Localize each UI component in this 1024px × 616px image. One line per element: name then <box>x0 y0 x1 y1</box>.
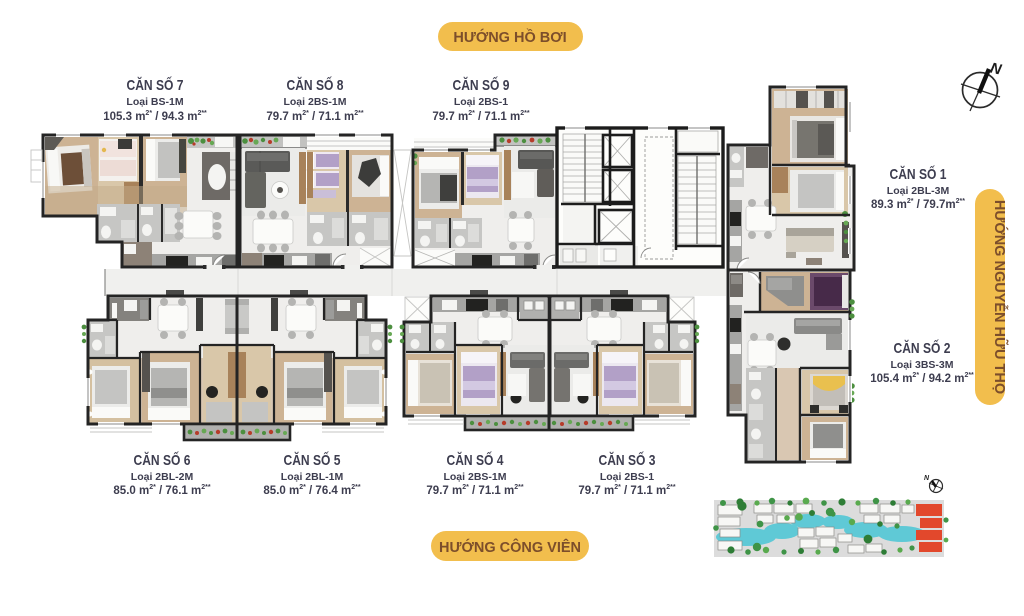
svg-text:105.3 m2* / 94.3 m2**: 105.3 m2* / 94.3 m2** <box>103 110 207 123</box>
svg-text:79.7 m2* / 71.1 m2**: 79.7 m2* / 71.1 m2** <box>432 110 529 123</box>
svg-text:CĂN SỐ 2: CĂN SỐ 2 <box>894 339 951 357</box>
svg-text:89.3 m2* / 79.7m2**: 89.3 m2* / 79.7m2** <box>871 198 965 211</box>
svg-text:79.7 m2* / 71.1 m2**: 79.7 m2* / 71.1 m2** <box>266 110 363 123</box>
svg-text:CĂN SỐ 6: CĂN SỐ 6 <box>134 451 191 469</box>
svg-text:CĂN SỐ 8: CĂN SỐ 8 <box>287 76 344 94</box>
svg-text:105.4 m2* / 94.2 m2**: 105.4 m2* / 94.2 m2** <box>870 372 974 385</box>
svg-text:HƯỚNG CÔNG VIÊN: HƯỚNG CÔNG VIÊN <box>439 538 581 556</box>
svg-text:CĂN SỐ 9: CĂN SỐ 9 <box>453 76 510 94</box>
svg-text:Loại 2BS-1M: Loại 2BS-1M <box>443 471 506 483</box>
svg-text:79.7 m2* / 71.1 m2**: 79.7 m2* / 71.1 m2** <box>426 484 523 497</box>
svg-text:Loại 2BS-1M: Loại 2BS-1M <box>283 96 346 108</box>
svg-text:CĂN SỐ 4: CĂN SỐ 4 <box>447 451 505 469</box>
svg-text:CĂN SỐ 5: CĂN SỐ 5 <box>284 451 341 469</box>
svg-text:HƯỚNG NGUYỄN HỮU THỌ: HƯỚNG NGUYỄN HỮU THỌ <box>991 200 1009 394</box>
svg-text:HƯỚNG HỒ BƠI: HƯỚNG HỒ BƠI <box>453 28 566 46</box>
svg-text:CĂN SỐ 3: CĂN SỐ 3 <box>599 451 656 469</box>
svg-text:CĂN SỐ 7: CĂN SỐ 7 <box>127 76 184 94</box>
svg-text:Loại 2BL-1M: Loại 2BL-1M <box>281 471 344 483</box>
svg-text:CĂN SỐ 1: CĂN SỐ 1 <box>890 165 947 183</box>
svg-text:Loại 2BS-1: Loại 2BS-1 <box>600 471 654 483</box>
svg-text:Loại 2BS-1: Loại 2BS-1 <box>454 96 508 108</box>
svg-text:85.0 m2* / 76.1 m2**: 85.0 m2* / 76.1 m2** <box>113 484 210 497</box>
svg-text:Loại BS-1M: Loại BS-1M <box>126 96 183 108</box>
svg-text:79.7 m2* / 71.1 m2**: 79.7 m2* / 71.1 m2** <box>578 484 675 497</box>
svg-text:Loại 2BL-2M: Loại 2BL-2M <box>131 471 194 483</box>
svg-text:85.0 m2* / 76.4 m2**: 85.0 m2* / 76.4 m2** <box>263 484 360 497</box>
svg-text:Loại 3BS-3M: Loại 3BS-3M <box>890 359 953 371</box>
svg-text:Loại 2BL-3M: Loại 2BL-3M <box>887 185 950 197</box>
